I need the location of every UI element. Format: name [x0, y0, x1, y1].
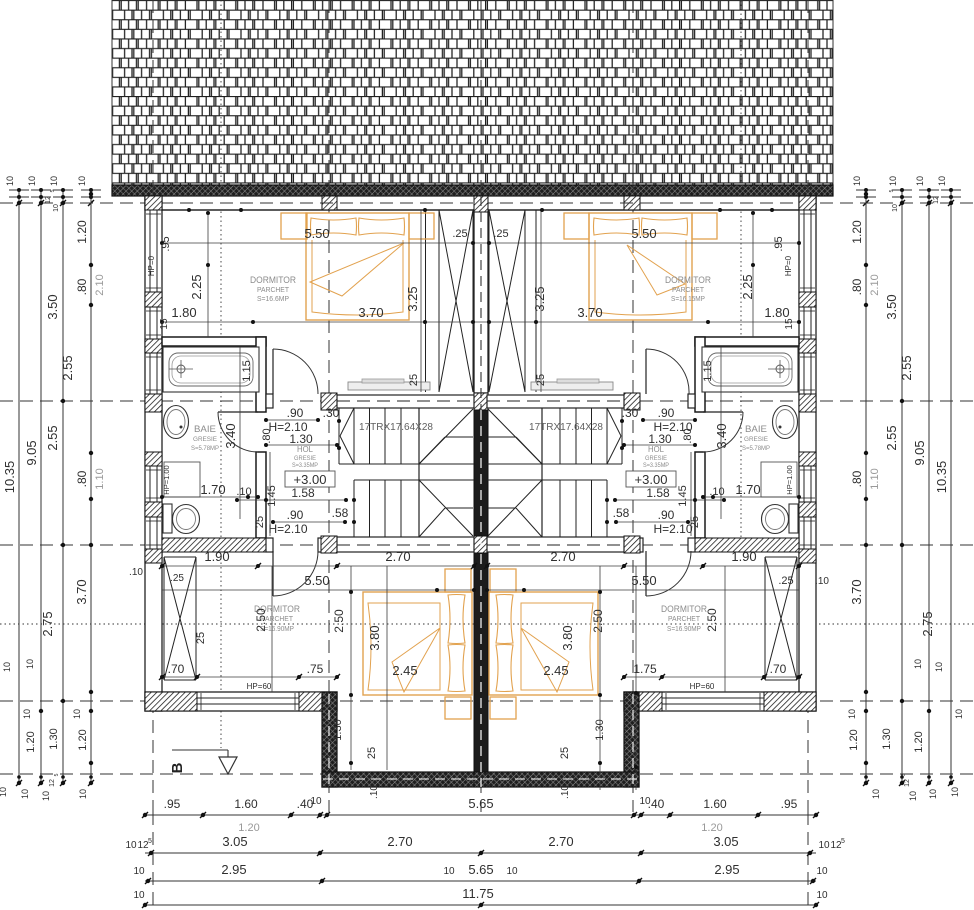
svg-text:3.25: 3.25: [532, 286, 547, 311]
svg-text:H=2.10: H=2.10: [653, 522, 692, 536]
svg-text:1.58: 1.58: [646, 486, 670, 500]
svg-text:1.75: 1.75: [633, 662, 657, 676]
svg-text:HP=0: HP=0: [784, 255, 793, 276]
svg-text:S=5.78MP: S=5.78MP: [742, 445, 770, 452]
svg-text:HP=1.00: HP=1.00: [162, 465, 171, 494]
svg-text:.80: .80: [850, 278, 864, 295]
svg-text:10: 10: [818, 840, 830, 851]
svg-text:2.75: 2.75: [40, 611, 55, 636]
svg-text:1.30: 1.30: [289, 432, 313, 446]
svg-text:10: 10: [816, 890, 828, 901]
svg-text:10: 10: [852, 176, 862, 186]
svg-text:.10: .10: [369, 785, 380, 799]
svg-text:10: 10: [0, 787, 8, 797]
svg-text:.70: .70: [168, 662, 185, 676]
svg-text:.90: .90: [287, 508, 304, 522]
svg-text:2.75: 2.75: [920, 611, 935, 636]
svg-text:.95: .95: [160, 236, 172, 251]
svg-text:1.30: 1.30: [48, 728, 60, 749]
svg-text:.80: .80: [75, 278, 89, 295]
svg-text:.30: .30: [323, 406, 340, 420]
svg-text:.90: .90: [658, 406, 675, 420]
svg-text:10: 10: [53, 204, 60, 212]
svg-text:3.70: 3.70: [74, 579, 89, 604]
svg-text:25: 25: [195, 632, 207, 644]
svg-text:10: 10: [847, 709, 857, 719]
svg-text:1.45: 1.45: [266, 485, 278, 506]
svg-text:5: 5: [901, 773, 907, 776]
svg-text:.95: .95: [773, 236, 785, 251]
svg-text:3.70: 3.70: [849, 579, 864, 604]
svg-text:HP=60: HP=60: [690, 682, 715, 691]
svg-text:2.55: 2.55: [45, 425, 60, 450]
svg-text:.40: .40: [648, 797, 665, 811]
svg-text:2.95: 2.95: [714, 862, 739, 877]
svg-text:9.05: 9.05: [24, 440, 39, 465]
svg-text:GRESIE: GRESIE: [294, 455, 317, 462]
svg-text:10: 10: [5, 176, 15, 186]
svg-text:17TRX17.64X28: 17TRX17.64X28: [529, 422, 603, 433]
svg-text:10.35: 10.35: [2, 461, 17, 494]
svg-text:3.05: 3.05: [222, 834, 247, 849]
svg-text:9.05: 9.05: [912, 440, 927, 465]
svg-text:3.70: 3.70: [358, 305, 383, 320]
svg-text:PARCHET: PARCHET: [672, 287, 705, 294]
svg-text:25: 25: [366, 747, 378, 759]
svg-text:3.80: 3.80: [367, 625, 382, 650]
svg-text:15: 15: [159, 318, 170, 330]
svg-text:5: 5: [148, 838, 152, 845]
svg-text:1.90: 1.90: [204, 549, 229, 564]
svg-text:2.55: 2.55: [60, 355, 75, 380]
svg-text:10: 10: [77, 176, 87, 186]
svg-text:2.55: 2.55: [899, 355, 914, 380]
svg-text:DORMITOR: DORMITOR: [250, 275, 296, 286]
svg-text:10: 10: [133, 890, 145, 901]
svg-text:10: 10: [506, 866, 518, 877]
svg-text:1.70: 1.70: [735, 482, 760, 497]
svg-text:.90: .90: [658, 508, 675, 522]
svg-text:10: 10: [41, 791, 51, 801]
svg-text:BAIE: BAIE: [745, 424, 767, 434]
svg-text:H=2.10: H=2.10: [268, 522, 307, 536]
svg-text:.10: .10: [560, 785, 571, 799]
svg-text:1.30: 1.30: [594, 719, 606, 740]
svg-text:1.20: 1.20: [850, 220, 864, 244]
svg-text:10: 10: [20, 789, 30, 799]
svg-text:10: 10: [954, 709, 964, 719]
svg-text:1.70: 1.70: [200, 482, 225, 497]
svg-text:1.10: 1.10: [94, 468, 106, 489]
svg-text:S=5.78MP: S=5.78MP: [191, 445, 219, 452]
svg-text:1.20: 1.20: [77, 729, 89, 750]
svg-text:3.25: 3.25: [405, 286, 420, 311]
svg-text:PARCHET: PARCHET: [257, 287, 290, 294]
svg-text:3.40: 3.40: [714, 423, 729, 448]
svg-text:25: 25: [254, 516, 266, 528]
svg-text:10: 10: [22, 709, 32, 719]
svg-text:.95: .95: [781, 797, 798, 811]
svg-text:5.65: 5.65: [468, 862, 493, 877]
svg-text:1.30: 1.30: [648, 432, 672, 446]
svg-text:.25: .25: [778, 575, 793, 587]
svg-text:10: 10: [133, 866, 145, 877]
svg-text:1.20: 1.20: [75, 220, 89, 244]
svg-text:.30: .30: [622, 406, 639, 420]
svg-text:GRESIE: GRESIE: [193, 436, 218, 443]
svg-text:2.50: 2.50: [705, 608, 719, 632]
svg-text:3.70: 3.70: [577, 305, 602, 320]
svg-text:10: 10: [950, 787, 960, 797]
svg-text:+3.00: +3.00: [635, 472, 668, 487]
svg-text:2.50: 2.50: [591, 609, 605, 633]
svg-text:10: 10: [27, 176, 37, 186]
svg-text:PARCHET: PARCHET: [668, 616, 701, 623]
svg-text:HP=1.00: HP=1.00: [785, 465, 794, 494]
svg-text:1.20: 1.20: [848, 729, 860, 750]
svg-text:10: 10: [125, 840, 137, 851]
svg-text:1.90: 1.90: [731, 549, 756, 564]
svg-text:.25: .25: [170, 573, 184, 584]
svg-text:3.50: 3.50: [884, 294, 899, 319]
svg-text:10: 10: [915, 176, 925, 186]
svg-text:12: 12: [933, 196, 940, 204]
svg-text:S=16.6MP: S=16.6MP: [257, 296, 289, 303]
svg-text:10: 10: [928, 789, 938, 799]
svg-text:10: 10: [913, 659, 923, 669]
svg-text:10: 10: [937, 176, 947, 186]
svg-text:2.25: 2.25: [189, 274, 204, 299]
svg-text:10: 10: [871, 789, 881, 799]
svg-text:HOL: HOL: [648, 445, 665, 454]
svg-text:.80: .80: [682, 428, 694, 443]
svg-text:2.10: 2.10: [94, 274, 106, 295]
svg-text:10: 10: [816, 866, 828, 877]
svg-text:25: 25: [408, 374, 420, 386]
svg-text:.90: .90: [287, 406, 304, 420]
svg-text:11.75: 11.75: [462, 886, 494, 901]
svg-text:17TRX17.64X28: 17TRX17.64X28: [359, 422, 433, 433]
svg-text:1.30: 1.30: [332, 719, 344, 740]
svg-text:.10: .10: [236, 486, 251, 498]
svg-text:DORMITOR: DORMITOR: [661, 604, 707, 615]
svg-text:10.35: 10.35: [934, 461, 949, 494]
svg-text:.10: .10: [709, 486, 724, 498]
svg-text:25: 25: [689, 516, 701, 528]
svg-text:12: 12: [904, 779, 911, 787]
svg-text:.25: .25: [493, 228, 508, 240]
svg-text:2.10: 2.10: [869, 274, 881, 295]
svg-text:10: 10: [310, 796, 322, 807]
svg-text:1.20: 1.20: [238, 822, 259, 834]
svg-text:10: 10: [2, 662, 12, 672]
svg-text:HOL: HOL: [297, 445, 314, 454]
svg-text:.80: .80: [850, 470, 864, 487]
svg-text:.80: .80: [75, 470, 89, 487]
svg-text:5.50: 5.50: [631, 573, 656, 588]
svg-text:1.80: 1.80: [764, 305, 789, 320]
svg-text:12: 12: [49, 779, 56, 787]
svg-text:1.60: 1.60: [703, 797, 727, 811]
svg-text:S=16.90MP: S=16.90MP: [667, 626, 701, 633]
svg-text:1.20: 1.20: [25, 731, 37, 752]
svg-text:.80: .80: [261, 428, 273, 443]
svg-text:S=16.15MP: S=16.15MP: [671, 296, 705, 303]
svg-text:1.20: 1.20: [913, 731, 925, 752]
svg-text:HP=0: HP=0: [147, 255, 156, 276]
svg-text:.58: .58: [332, 506, 349, 520]
svg-text:2.70: 2.70: [548, 834, 573, 849]
svg-text:2.45: 2.45: [392, 663, 417, 678]
svg-text:2.70: 2.70: [387, 834, 412, 849]
svg-text:1.80: 1.80: [171, 305, 196, 320]
svg-text:3.80: 3.80: [560, 625, 575, 650]
svg-text:12: 12: [45, 196, 52, 204]
svg-text:1.60: 1.60: [234, 797, 258, 811]
svg-text:10: 10: [934, 662, 944, 672]
svg-text:S=3.35MP: S=3.35MP: [292, 462, 318, 469]
svg-text:5.50: 5.50: [304, 226, 329, 241]
svg-text:1.10: 1.10: [869, 468, 881, 489]
svg-text:10: 10: [72, 709, 82, 719]
svg-text:5.50: 5.50: [304, 573, 329, 588]
svg-text:10: 10: [888, 176, 898, 186]
svg-text:10: 10: [78, 789, 88, 799]
svg-text:B: B: [169, 762, 186, 773]
svg-text:2.50: 2.50: [332, 609, 346, 633]
svg-text:DORMITOR: DORMITOR: [665, 275, 711, 286]
svg-text:25: 25: [535, 374, 547, 386]
svg-text:.70: .70: [770, 662, 787, 676]
svg-text:2.25: 2.25: [740, 274, 755, 299]
svg-text:5: 5: [889, 189, 895, 192]
svg-text:10: 10: [908, 791, 918, 801]
svg-text:.95: .95: [164, 797, 181, 811]
svg-text:.58: .58: [613, 506, 630, 520]
svg-text:1.15: 1.15: [241, 360, 253, 381]
svg-text:.10: .10: [815, 576, 829, 587]
svg-text:5: 5: [54, 773, 60, 776]
svg-text:+3.00: +3.00: [294, 472, 327, 487]
svg-text:15: 15: [784, 318, 795, 330]
svg-text:BAIE: BAIE: [194, 424, 216, 434]
svg-text:5.50: 5.50: [631, 226, 656, 241]
svg-text:2.95: 2.95: [221, 862, 246, 877]
svg-text:3.05: 3.05: [713, 834, 738, 849]
svg-text:10: 10: [25, 659, 35, 669]
svg-text:5: 5: [841, 838, 845, 845]
svg-text:S=3.35MP: S=3.35MP: [643, 462, 669, 469]
svg-text:.25: .25: [452, 228, 467, 240]
svg-text:2.50: 2.50: [254, 608, 268, 632]
svg-text:2.45: 2.45: [543, 663, 568, 678]
svg-text:2.55: 2.55: [884, 425, 899, 450]
svg-text:5: 5: [50, 189, 56, 192]
svg-text:10: 10: [443, 866, 455, 877]
svg-text:GRESIE: GRESIE: [744, 436, 769, 443]
svg-text:3.50: 3.50: [45, 294, 60, 319]
svg-text:3.40: 3.40: [223, 423, 238, 448]
svg-text:GRESIE: GRESIE: [645, 455, 668, 462]
svg-text:25: 25: [559, 747, 571, 759]
svg-text:5.65: 5.65: [468, 796, 493, 811]
svg-text:1.45: 1.45: [677, 485, 689, 506]
svg-text:.75: .75: [307, 662, 324, 676]
svg-text:2.70: 2.70: [550, 549, 575, 564]
svg-text:1.58: 1.58: [291, 486, 315, 500]
svg-text:1.15: 1.15: [702, 360, 714, 381]
svg-text:.10: .10: [129, 567, 143, 578]
svg-text:2.70: 2.70: [385, 549, 410, 564]
svg-text:10: 10: [49, 176, 59, 186]
svg-text:1.20: 1.20: [701, 822, 722, 834]
svg-text:10: 10: [892, 204, 899, 212]
svg-text:HP=60: HP=60: [247, 682, 272, 691]
svg-text:1.30: 1.30: [881, 728, 893, 749]
